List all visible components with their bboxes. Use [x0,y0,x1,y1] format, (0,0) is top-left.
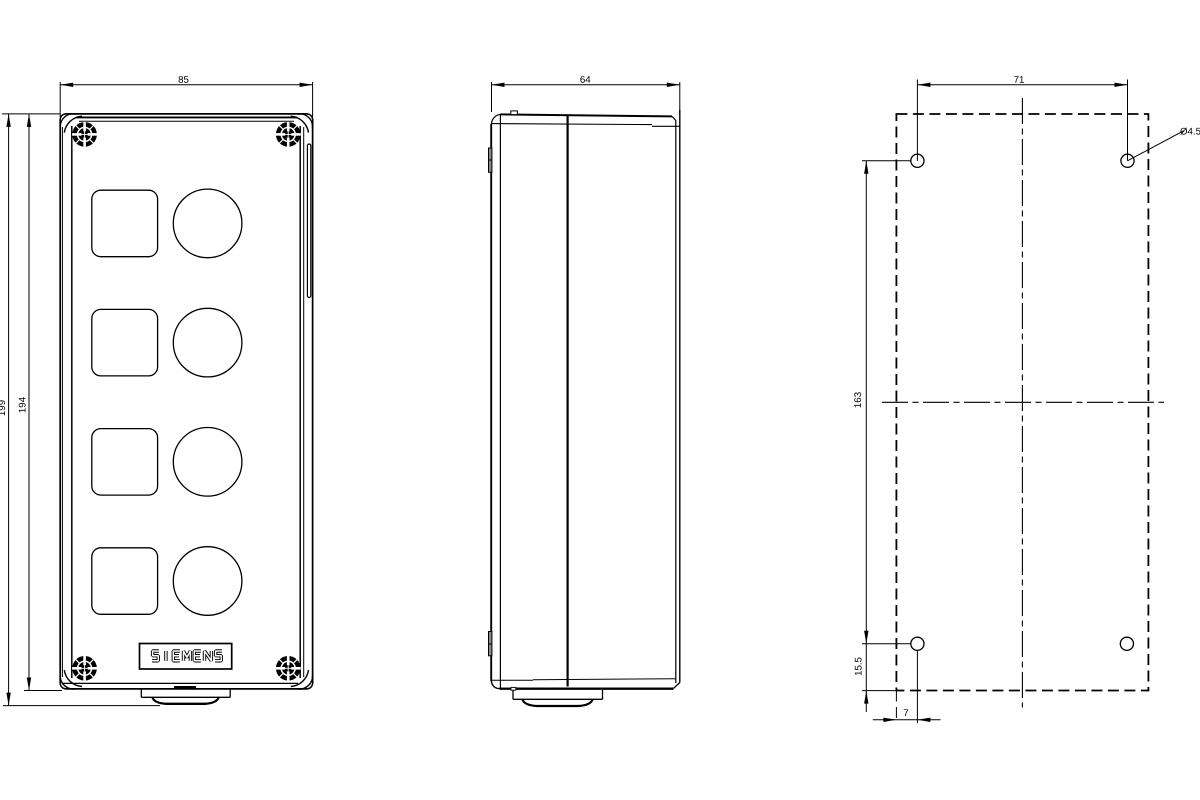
svg-text:163: 163 [853,392,864,408]
svg-text:7: 7 [903,708,908,719]
svg-text:194: 194 [18,396,29,413]
svg-text:15.5: 15.5 [854,657,865,676]
svg-text:Ø4.5: Ø4.5 [1180,127,1200,138]
svg-text:64: 64 [580,75,591,86]
svg-text:71: 71 [1014,75,1025,86]
svg-text:85: 85 [178,75,189,86]
svg-text:199: 199 [0,400,8,416]
